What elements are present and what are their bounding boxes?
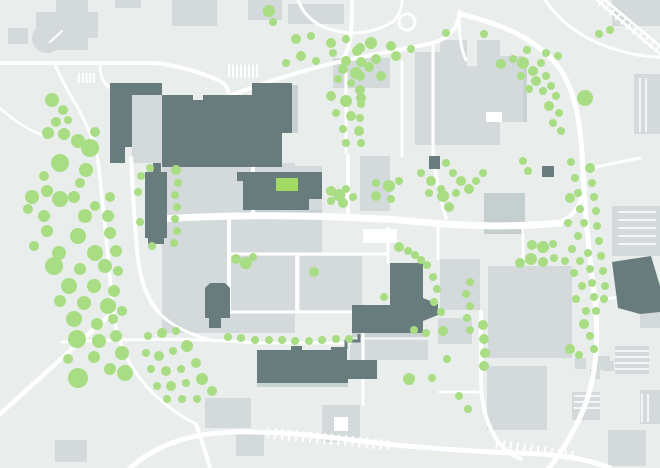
- tree: [68, 368, 88, 388]
- tree: [572, 295, 580, 303]
- tree: [592, 207, 600, 215]
- tree: [102, 210, 114, 222]
- tree: [352, 46, 362, 56]
- building-light: [115, 0, 141, 8]
- tree: [42, 127, 54, 139]
- tree: [407, 45, 415, 53]
- building-light: [288, 4, 344, 24]
- tree: [531, 76, 541, 86]
- tree: [595, 30, 603, 38]
- tree: [565, 193, 575, 203]
- tree: [371, 54, 381, 64]
- tree: [590, 293, 598, 301]
- tree: [170, 239, 178, 247]
- tree: [442, 29, 450, 37]
- tree: [291, 34, 301, 44]
- tree: [113, 266, 123, 276]
- tree: [137, 172, 145, 180]
- tree: [593, 222, 601, 230]
- tree: [81, 139, 99, 157]
- building-light: [236, 434, 264, 456]
- building-dark: [429, 156, 440, 169]
- tree: [329, 49, 337, 57]
- tree: [564, 219, 572, 227]
- building-courtyard: [363, 229, 397, 243]
- tree: [163, 395, 171, 403]
- tree: [595, 237, 603, 245]
- tree: [70, 228, 86, 244]
- tree: [606, 26, 614, 34]
- tree: [538, 257, 548, 267]
- building-light: [487, 366, 547, 430]
- tree: [196, 373, 208, 385]
- tree: [64, 116, 72, 124]
- tree: [346, 111, 356, 121]
- tree: [52, 191, 68, 207]
- tree: [479, 169, 487, 177]
- tree: [345, 335, 353, 343]
- tree: [154, 351, 164, 361]
- tree: [312, 57, 320, 65]
- tree: [584, 249, 592, 257]
- tree: [565, 344, 575, 354]
- tree: [338, 64, 348, 74]
- tree: [142, 349, 150, 357]
- tree: [144, 332, 152, 340]
- tree: [136, 218, 144, 226]
- tree: [542, 49, 550, 57]
- tree: [68, 330, 86, 348]
- tree: [464, 184, 474, 194]
- tree: [357, 139, 365, 147]
- tree: [51, 154, 69, 172]
- tree: [480, 348, 490, 358]
- tree: [574, 189, 582, 197]
- tree: [442, 159, 450, 167]
- tree: [332, 109, 340, 117]
- tree: [517, 57, 529, 69]
- tree: [585, 163, 595, 173]
- tree: [452, 189, 460, 197]
- tree: [148, 242, 156, 250]
- tree: [231, 254, 241, 264]
- tree: [207, 386, 217, 396]
- tree: [395, 177, 403, 185]
- tree: [61, 278, 77, 294]
- tree: [224, 333, 232, 341]
- tree: [480, 30, 488, 38]
- highlighted-building: [276, 178, 298, 191]
- tree: [574, 232, 582, 240]
- tree: [426, 176, 436, 186]
- tree: [438, 326, 448, 336]
- tree: [449, 169, 457, 177]
- tree: [172, 327, 180, 335]
- tree: [58, 105, 68, 115]
- tree: [443, 355, 451, 363]
- tree: [376, 71, 386, 81]
- tree: [575, 351, 583, 359]
- tree: [66, 311, 82, 327]
- tree: [537, 59, 545, 67]
- tree: [576, 257, 584, 265]
- tree: [171, 165, 181, 175]
- tree: [326, 91, 336, 101]
- building-light: [575, 358, 586, 369]
- tree: [45, 257, 63, 275]
- tree: [391, 51, 401, 61]
- tree: [582, 307, 590, 315]
- tree: [429, 273, 437, 281]
- tree: [171, 215, 179, 223]
- tree: [307, 32, 315, 40]
- tree: [347, 79, 355, 87]
- tree: [38, 210, 50, 222]
- building-light: [205, 398, 251, 428]
- tree: [182, 379, 190, 387]
- tree: [601, 282, 609, 290]
- tree: [578, 282, 586, 290]
- tree: [528, 66, 538, 76]
- tree: [110, 245, 122, 257]
- tree: [466, 326, 474, 334]
- tree: [193, 395, 201, 403]
- tree: [422, 329, 430, 337]
- tree: [291, 337, 299, 345]
- tree: [456, 176, 466, 186]
- tree: [296, 51, 306, 61]
- tree: [166, 381, 176, 391]
- building-light: [440, 259, 480, 310]
- tree: [342, 139, 350, 147]
- tree: [552, 92, 560, 100]
- tree: [173, 203, 181, 211]
- tree: [509, 55, 517, 63]
- building-dark: [205, 283, 230, 318]
- tree: [444, 202, 454, 212]
- tree: [568, 245, 576, 253]
- tree: [90, 201, 100, 211]
- tree: [334, 75, 342, 83]
- building-light: [604, 361, 614, 371]
- tree: [462, 290, 470, 298]
- tree: [117, 365, 133, 381]
- tree: [437, 190, 449, 202]
- tree: [157, 328, 167, 338]
- tree: [567, 158, 575, 166]
- tree: [134, 188, 142, 196]
- tree: [78, 209, 92, 223]
- tree: [417, 169, 425, 177]
- campus-map[interactable]: [0, 0, 660, 468]
- tree: [479, 334, 489, 344]
- building-courtyard: [334, 417, 348, 431]
- tree: [539, 87, 547, 95]
- building-light: [488, 266, 572, 358]
- tree: [340, 95, 352, 107]
- tree: [430, 298, 438, 306]
- tree: [554, 52, 562, 60]
- tree: [496, 59, 506, 69]
- tree: [525, 85, 533, 93]
- tree: [41, 225, 53, 237]
- building-dark: [145, 172, 167, 238]
- building-light: [172, 0, 217, 26]
- building-shadow: [257, 383, 348, 387]
- tree: [577, 90, 593, 106]
- tree: [423, 261, 431, 269]
- tree: [191, 358, 201, 368]
- tree: [394, 242, 404, 252]
- tree: [108, 285, 120, 297]
- tree: [463, 314, 471, 322]
- tree: [88, 351, 100, 363]
- tree: [54, 295, 66, 307]
- building-light: [132, 95, 162, 163]
- tree: [178, 395, 186, 403]
- tree: [146, 164, 154, 172]
- tree: [63, 354, 73, 364]
- tree: [265, 336, 273, 344]
- building-dark: [612, 256, 660, 314]
- tree: [544, 101, 554, 111]
- tree: [549, 119, 557, 127]
- tree: [356, 114, 364, 122]
- tree: [147, 365, 155, 373]
- tree: [386, 41, 396, 51]
- tree: [549, 240, 557, 248]
- tree: [318, 336, 326, 344]
- tree: [364, 62, 374, 72]
- tree: [278, 336, 286, 344]
- tree: [108, 314, 118, 324]
- tree: [173, 227, 181, 235]
- campus-map-svg: [0, 0, 660, 468]
- building-dark: [542, 166, 554, 177]
- tree: [45, 93, 59, 107]
- building-dark: [153, 163, 161, 172]
- tree: [263, 5, 275, 17]
- tree: [342, 185, 350, 193]
- tree: [590, 193, 598, 201]
- tree: [332, 335, 340, 343]
- tree: [309, 267, 319, 277]
- tree: [592, 307, 600, 315]
- building-dark: [209, 318, 221, 328]
- tree: [479, 361, 489, 371]
- tree: [527, 240, 537, 250]
- tree: [356, 93, 366, 103]
- tree: [174, 179, 182, 187]
- tree: [597, 252, 605, 260]
- tree: [524, 167, 532, 175]
- tree: [100, 298, 116, 314]
- tree: [371, 191, 381, 201]
- tree: [58, 128, 70, 140]
- tree: [339, 125, 347, 133]
- tree: [41, 185, 53, 197]
- tree: [590, 345, 598, 353]
- tree: [525, 253, 537, 265]
- tree: [517, 72, 525, 80]
- tree: [576, 205, 584, 213]
- tree: [466, 302, 474, 310]
- tree: [39, 171, 49, 181]
- tree: [77, 296, 91, 310]
- tree: [372, 179, 380, 187]
- tree: [110, 330, 122, 342]
- tree: [104, 363, 116, 375]
- tree: [588, 279, 596, 287]
- tree: [466, 278, 474, 286]
- tree: [23, 204, 33, 214]
- tree: [68, 191, 80, 203]
- tree: [599, 267, 607, 275]
- tree: [249, 253, 257, 261]
- tree: [92, 334, 106, 348]
- tree: [478, 320, 488, 330]
- tree: [115, 346, 129, 360]
- tree: [90, 127, 100, 137]
- tree: [557, 127, 565, 135]
- tree: [29, 241, 39, 251]
- tree: [410, 326, 418, 334]
- tree: [579, 319, 589, 329]
- tree: [404, 247, 412, 255]
- tree: [305, 337, 313, 345]
- building-light: [615, 346, 649, 374]
- tree: [519, 157, 527, 165]
- tree: [338, 198, 348, 208]
- tree: [153, 382, 161, 390]
- building-light: [300, 256, 362, 310]
- tree: [87, 245, 103, 261]
- tree: [342, 35, 350, 43]
- tree: [515, 258, 525, 268]
- tree: [387, 195, 395, 203]
- tree: [542, 72, 550, 80]
- tree: [380, 293, 388, 301]
- building-light: [634, 74, 660, 134]
- tree: [74, 263, 86, 275]
- tree: [455, 392, 463, 400]
- tree: [327, 197, 335, 205]
- tree: [464, 405, 472, 413]
- tree: [472, 177, 480, 185]
- tree: [561, 257, 569, 265]
- tree: [105, 192, 115, 202]
- tree: [161, 366, 171, 376]
- building-light: [55, 440, 87, 462]
- building-shadow: [292, 85, 298, 133]
- tree: [580, 219, 588, 227]
- tree: [586, 332, 594, 340]
- tree: [537, 241, 549, 253]
- tree: [588, 179, 596, 187]
- tree: [425, 189, 433, 197]
- tree: [251, 336, 259, 344]
- tree: [349, 193, 357, 201]
- tree: [75, 178, 85, 188]
- building-light: [612, 206, 660, 256]
- building-light: [608, 430, 646, 466]
- tree: [171, 191, 179, 199]
- tree: [181, 340, 193, 352]
- tree: [437, 308, 445, 316]
- tree: [570, 269, 578, 277]
- building-light: [32, 23, 62, 53]
- tree: [87, 279, 101, 293]
- tree: [523, 46, 531, 54]
- tree: [177, 365, 185, 373]
- building-courtyard: [486, 112, 502, 122]
- tree: [547, 82, 555, 90]
- tree: [571, 174, 579, 182]
- tree: [51, 117, 61, 127]
- tree: [550, 254, 558, 262]
- tree: [79, 163, 93, 177]
- tree: [555, 109, 563, 117]
- tree: [600, 295, 608, 303]
- building-dark: [162, 83, 292, 167]
- tree: [98, 259, 112, 273]
- tree: [433, 285, 441, 293]
- tree: [428, 374, 436, 382]
- tree: [169, 347, 177, 355]
- tree: [282, 59, 290, 67]
- tree: [25, 190, 39, 204]
- tree: [326, 38, 336, 48]
- tree: [104, 227, 116, 239]
- tree: [586, 265, 594, 273]
- tree: [350, 67, 362, 79]
- tree: [365, 37, 377, 49]
- tree: [91, 318, 103, 330]
- building-light: [8, 28, 28, 44]
- tree: [354, 126, 364, 136]
- tree: [117, 306, 127, 316]
- building-light: [640, 390, 660, 424]
- tree: [383, 180, 395, 192]
- tree: [403, 373, 415, 385]
- tree: [237, 334, 245, 342]
- tree: [269, 18, 277, 26]
